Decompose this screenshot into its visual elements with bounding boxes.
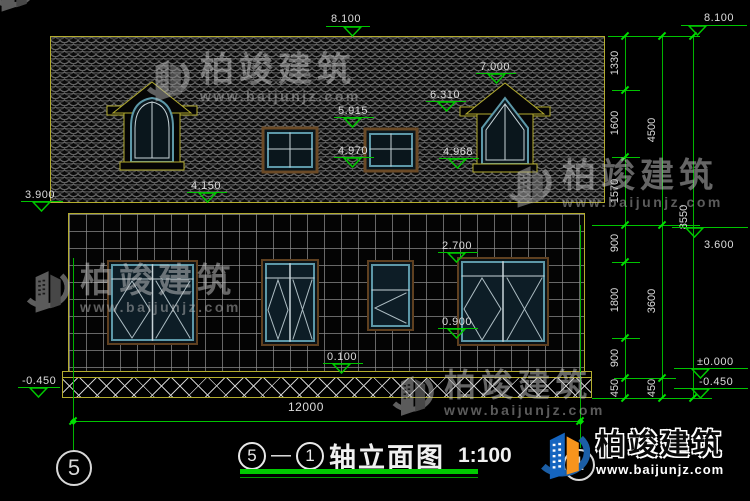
elevation-triangle — [688, 25, 707, 36]
elevation-triangle — [343, 117, 362, 128]
axis-line-right — [580, 225, 581, 448]
elevation-triangle — [198, 192, 217, 203]
elevation-triangle — [447, 252, 466, 263]
elevation-triangle — [32, 201, 51, 212]
elevation-label: 4.150 — [191, 180, 221, 192]
brand-name: 柏竣建筑 — [596, 431, 724, 460]
axis-number: 5 — [68, 455, 80, 481]
elevation-triangle — [685, 227, 704, 238]
elevation-label: 0.900 — [442, 316, 472, 328]
dim-label: 900 — [609, 234, 621, 252]
window-a — [108, 261, 197, 344]
elev-line — [674, 388, 748, 389]
roof-window-2 — [365, 129, 417, 171]
elevation-triangle — [447, 328, 466, 339]
elevation-triangle — [437, 101, 456, 112]
elevation-label: ±0.000 — [697, 356, 734, 368]
elevation-label: 6.310 — [430, 89, 460, 101]
elevation-triangle — [448, 158, 467, 169]
title-dash: — — [271, 444, 291, 467]
dim-label: 8550 — [678, 205, 690, 229]
elevation-triangle — [332, 363, 351, 374]
dim-label: 900 — [609, 349, 621, 367]
dim-label: 1600 — [609, 111, 621, 135]
elevation-label: 4.970 — [338, 145, 368, 157]
elevation-label: 3.600 — [704, 239, 734, 251]
brand-logo: 柏竣建筑 www.baijunjz.com — [534, 424, 724, 486]
title-underline-thick — [240, 469, 478, 474]
dim-line-outer — [693, 36, 694, 398]
dim-line-mid — [662, 36, 663, 398]
elevation-label: 0.100 — [327, 351, 357, 363]
dim-label: 4500 — [646, 118, 658, 142]
window-b — [262, 260, 318, 345]
dim-label: 450 — [646, 379, 658, 397]
elevation-label: 8.100 — [704, 12, 734, 24]
title-scale: 1:100 — [458, 444, 512, 468]
elevation-label: 3.900 — [25, 189, 55, 201]
watermark-logo-icon — [0, 0, 38, 18]
title-axis-bubble-to: 1 — [296, 442, 324, 470]
elevation-label: 4.968 — [443, 146, 473, 158]
elevation-triangle — [343, 26, 362, 37]
brand-logo-icon — [534, 424, 590, 486]
elev-line — [674, 368, 748, 369]
elevation-triangle — [487, 73, 506, 84]
window-c — [368, 261, 413, 330]
axis-bubble-left: 5 — [56, 450, 92, 486]
dim-label: 3600 — [646, 289, 658, 313]
cad-elevation-drawing: 1330 1600 1570 900 1800 900 450 4500 360… — [0, 0, 750, 501]
elevation-label: -0.450 — [699, 376, 733, 388]
dim-label: 1330 — [609, 51, 621, 75]
elev-line — [672, 227, 748, 228]
elevation-triangle — [691, 388, 710, 399]
window-d — [458, 258, 548, 345]
elevation-label: 7.000 — [480, 61, 510, 73]
elevation-label: 2.700 — [442, 240, 472, 252]
elevation-label: 5.915 — [338, 105, 368, 117]
bottom-dim-line — [73, 421, 580, 422]
roof-window-1 — [263, 128, 317, 172]
dim-label: 1570 — [609, 179, 621, 203]
elevation-label: -0.450 — [22, 375, 56, 387]
title-underline-thin — [240, 477, 478, 478]
dim-label: 1800 — [609, 288, 621, 312]
elevation-triangle — [29, 387, 48, 398]
elevation-triangle — [343, 157, 362, 168]
brand-url: www.baijunjz.com — [596, 460, 724, 480]
bottom-dim-label: 12000 — [288, 400, 324, 414]
elevation-label: 8.100 — [331, 13, 361, 25]
dim-label: 450 — [609, 379, 621, 397]
title-axis-bubble-from: 5 — [238, 442, 266, 470]
